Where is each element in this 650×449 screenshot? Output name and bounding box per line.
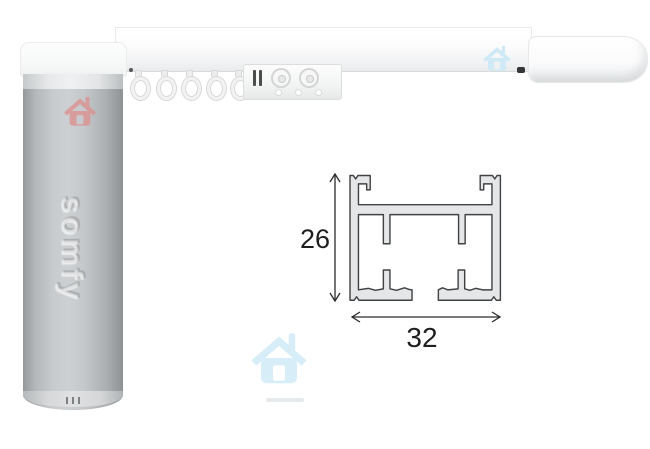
curtain-glider bbox=[131, 70, 145, 100]
width-dimension-arrow-icon bbox=[352, 312, 500, 322]
glider-neck bbox=[135, 70, 142, 77]
rail-end-cap bbox=[528, 36, 648, 83]
carrier-hole-icon bbox=[295, 89, 302, 96]
carrier-belt-slot-icon bbox=[259, 70, 262, 86]
carrier-roller-icon bbox=[271, 68, 291, 88]
motor-glass-ring bbox=[23, 74, 123, 89]
house-body bbox=[488, 58, 506, 71]
height-dimension-label: 26 bbox=[296, 224, 334, 255]
motor-top-cap bbox=[20, 42, 127, 77]
curtain-glider bbox=[207, 70, 221, 100]
curtain-glider bbox=[182, 70, 196, 100]
rail-profile-shape bbox=[350, 175, 500, 300]
rail-screw-dot bbox=[129, 68, 133, 72]
carrier-belt-slot-icon bbox=[253, 70, 256, 86]
glider-ring bbox=[157, 77, 176, 100]
house-body bbox=[70, 111, 91, 126]
vent-marks-icon bbox=[66, 397, 80, 404]
somfy-logo-text: somfy bbox=[57, 168, 89, 331]
rail-end-fastener-dot bbox=[517, 67, 525, 73]
glider-neck bbox=[186, 70, 193, 77]
curtain-glider bbox=[157, 70, 171, 100]
watermark-underline bbox=[266, 398, 304, 402]
carrier-roller-icon bbox=[299, 68, 319, 88]
glider-ring bbox=[207, 77, 226, 100]
motor-bottom-band bbox=[23, 391, 123, 407]
width-dimension-label: 32 bbox=[400, 322, 444, 354]
house-watermark-icon-small bbox=[482, 40, 512, 76]
profile-outline bbox=[350, 175, 500, 300]
master-carrier bbox=[243, 64, 342, 100]
glider-neck bbox=[161, 70, 168, 77]
glider-neck bbox=[235, 70, 242, 77]
glider-neck bbox=[211, 70, 218, 77]
glider-ring bbox=[182, 77, 201, 100]
carrier-hole-icon bbox=[315, 89, 322, 96]
house-watermark-icon-red bbox=[62, 95, 98, 127]
product-image-canvas: somfy bbox=[0, 0, 650, 449]
house-body bbox=[261, 358, 297, 383]
glider-ring bbox=[131, 77, 150, 100]
carrier-hole-icon bbox=[275, 89, 282, 96]
